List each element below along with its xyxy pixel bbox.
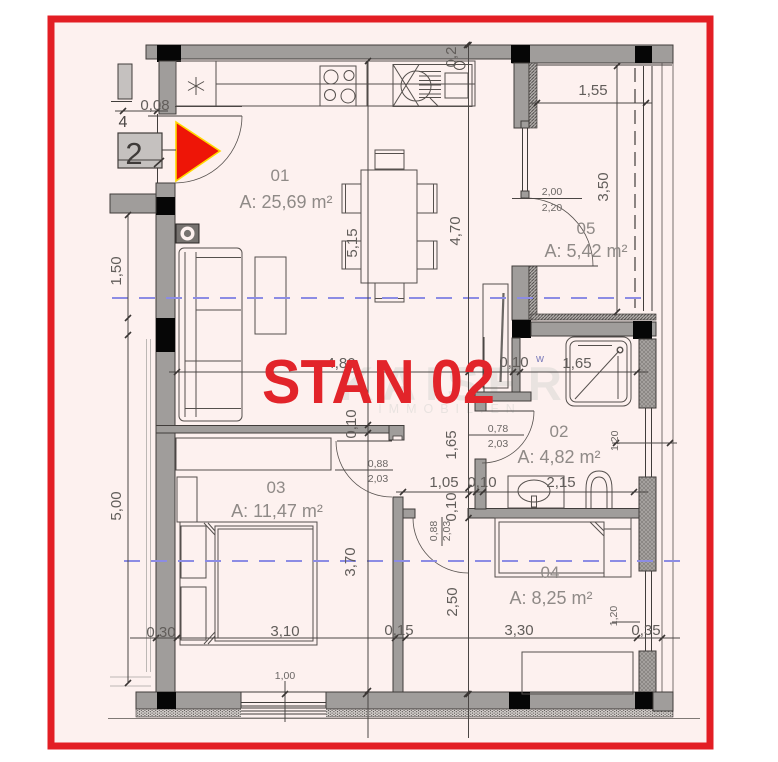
svg-text:2,03: 2,03 <box>441 521 453 542</box>
svg-text:0,35: 0,35 <box>631 622 660 639</box>
svg-text:2: 2 <box>125 136 142 171</box>
svg-text:1,05: 1,05 <box>429 474 458 491</box>
svg-text:1,00: 1,00 <box>275 670 296 682</box>
svg-text:02: 02 <box>550 422 569 441</box>
svg-text:0,10: 0,10 <box>499 354 528 371</box>
svg-text:A: 25,69 m²: A: 25,69 m² <box>239 192 332 212</box>
svg-text:03: 03 <box>267 478 286 497</box>
svg-text:3,10: 3,10 <box>270 623 299 640</box>
svg-text:0,30: 0,30 <box>146 624 175 641</box>
svg-text:2,50: 2,50 <box>444 587 461 616</box>
svg-text:2,03: 2,03 <box>488 438 509 450</box>
svg-text:1,50: 1,50 <box>108 256 125 285</box>
svg-text:4: 4 <box>119 114 128 131</box>
svg-text:A: 11,47 m²: A: 11,47 m² <box>231 501 323 521</box>
svg-text:1,20: 1,20 <box>609 430 621 451</box>
svg-text:2,20: 2,20 <box>542 202 563 214</box>
svg-text:A: 4,82 m²: A: 4,82 m² <box>517 447 600 467</box>
svg-text:0,78: 0,78 <box>488 423 509 435</box>
svg-text:0,08: 0,08 <box>140 97 169 114</box>
svg-text:0,10: 0,10 <box>443 492 460 521</box>
svg-text:A: 5,42 m²: A: 5,42 m² <box>544 241 627 261</box>
svg-text:1,20: 1,20 <box>608 606 620 627</box>
svg-text:0,2: 0,2 <box>443 47 460 68</box>
svg-text:2,03: 2,03 <box>368 473 389 485</box>
svg-text:01: 01 <box>271 166 290 185</box>
svg-text:5,00: 5,00 <box>108 491 125 520</box>
svg-text:2,15: 2,15 <box>546 474 575 491</box>
svg-text:05: 05 <box>577 219 596 238</box>
svg-text:STAN 02: STAN 02 <box>262 348 495 417</box>
svg-text:3,70: 3,70 <box>342 547 359 576</box>
svg-text:0,15: 0,15 <box>384 622 413 639</box>
svg-text:3,50: 3,50 <box>595 172 612 201</box>
svg-text:0,10: 0,10 <box>467 474 496 491</box>
svg-text:0,88: 0,88 <box>368 458 389 470</box>
svg-text:1,65: 1,65 <box>443 430 460 459</box>
svg-text:2,00: 2,00 <box>542 186 563 198</box>
svg-text:04: 04 <box>541 563 560 582</box>
svg-text:4,70: 4,70 <box>447 216 464 245</box>
svg-text:A: 8,25 m²: A: 8,25 m² <box>509 588 592 608</box>
svg-text:3,30: 3,30 <box>504 622 533 639</box>
svg-text:0,88: 0,88 <box>428 521 440 542</box>
svg-text:1,55: 1,55 <box>578 82 607 99</box>
svg-text:5,15: 5,15 <box>344 228 361 257</box>
svg-text:1,65: 1,65 <box>562 355 591 372</box>
svg-text:w: w <box>535 353 544 365</box>
